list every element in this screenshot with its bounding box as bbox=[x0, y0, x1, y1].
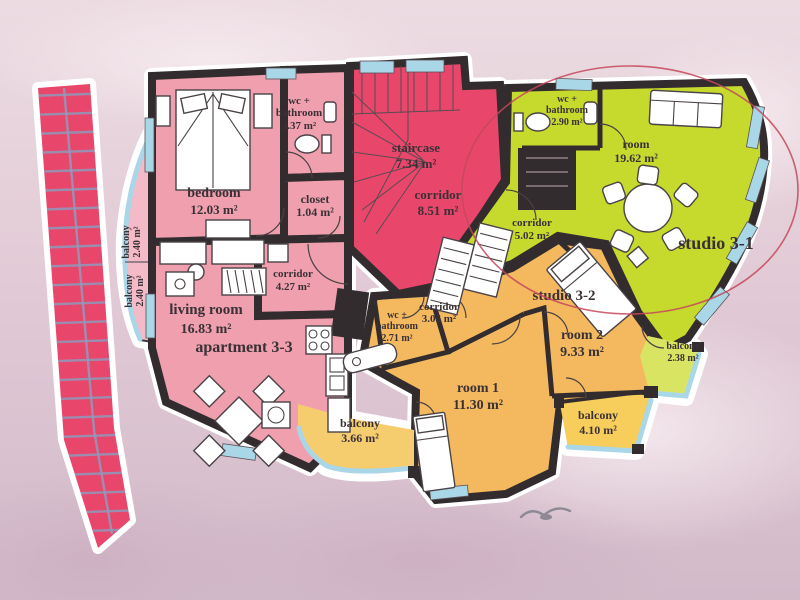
label-room1-area: 11.30 m² bbox=[453, 398, 503, 413]
sink-icon bbox=[324, 102, 336, 122]
label-balcony-238: balcony bbox=[666, 341, 699, 352]
window bbox=[556, 78, 592, 90]
label-wc-a-1: wc + bbox=[288, 95, 310, 107]
label-corridor-main-area: 8.51 m² bbox=[418, 203, 459, 218]
label-room2-area: 9.33 m² bbox=[560, 345, 604, 360]
washing-machine-icon bbox=[262, 402, 290, 428]
nightstand-icon bbox=[254, 94, 272, 128]
label-balcony-left-upper: balcony bbox=[121, 225, 132, 258]
label-balcony-238-area: 2.38 m² bbox=[667, 353, 698, 364]
floor-plan-canvas: bedroom 12.03 m² wc + bathroom 3.37 m² c… bbox=[0, 0, 800, 600]
label-balcony-left-lower-area: 2.40 m² bbox=[135, 275, 146, 306]
toilet-icon bbox=[514, 113, 550, 131]
label-corridor-s1: corridor bbox=[512, 217, 552, 229]
label-room-s1: room bbox=[622, 137, 649, 151]
label-staircase: staircase bbox=[392, 140, 440, 155]
double-bed-icon bbox=[176, 90, 250, 190]
window bbox=[360, 61, 394, 73]
label-corridor-s2-area: 3.06 m² bbox=[422, 313, 457, 325]
label-balcony-left-lower: balcony bbox=[124, 274, 135, 307]
label-corridor-s2: corridor bbox=[419, 301, 459, 313]
window bbox=[266, 68, 296, 79]
label-wc-s1-2: bathroom bbox=[546, 105, 589, 116]
wardrobe-icon bbox=[222, 268, 266, 295]
label-bedroom: bedroom bbox=[187, 186, 241, 201]
label-balcony-366-area: 3.66 m² bbox=[341, 431, 379, 445]
label-wc-s1-1: wc + bbox=[557, 94, 577, 105]
label-wc-s2-area: 2.71 m² bbox=[381, 333, 412, 344]
printer-icon bbox=[166, 272, 194, 296]
label-living: living room bbox=[169, 302, 243, 318]
vent-shaft bbox=[331, 288, 369, 340]
label-room-s1-area: 19.62 m² bbox=[614, 151, 658, 165]
label-closet: closet bbox=[301, 192, 330, 206]
stove-icon bbox=[306, 326, 332, 354]
toilet-icon bbox=[295, 135, 331, 153]
label-living-area: 16.83 m² bbox=[181, 322, 232, 337]
label-wc-a-area: 3.37 m² bbox=[282, 120, 317, 132]
label-wc-s2-1: wc + bbox=[387, 310, 407, 321]
label-wc-s2-2: bathroom bbox=[376, 321, 419, 332]
label-corridor-main: corridor bbox=[415, 187, 462, 202]
label-balcony-410: balcony bbox=[578, 408, 618, 422]
label-room2: room 2 bbox=[561, 328, 603, 343]
label-balcony-left-upper-area: 2.40 m² bbox=[132, 226, 143, 257]
sofa-icon bbox=[649, 90, 723, 128]
label-room1: room 1 bbox=[457, 381, 499, 396]
window bbox=[406, 60, 444, 72]
label-corridor-a: corridor bbox=[273, 268, 313, 280]
label-bedroom-area: 12.03 m² bbox=[190, 202, 237, 217]
window bbox=[146, 294, 155, 338]
label-corridor-a-area: 4.27 m² bbox=[276, 281, 311, 293]
label-staircase-area: 7.34 m² bbox=[396, 156, 437, 171]
label-corridor-s1-area: 5.02 m² bbox=[515, 230, 550, 242]
label-wc-s1-area: 2.90 m² bbox=[551, 117, 582, 128]
label-wc-a-2: bathroom bbox=[276, 107, 322, 119]
label-closet-area: 1.04 m² bbox=[296, 205, 334, 219]
label-studio-3-1: studio 3-1 bbox=[678, 233, 754, 253]
label-balcony-410-area: 4.10 m² bbox=[579, 423, 617, 437]
bench-icon bbox=[206, 220, 250, 238]
label-balcony-366: balcony bbox=[340, 416, 380, 430]
window bbox=[145, 118, 154, 172]
nightstand-icon bbox=[156, 96, 170, 126]
label-apartment: apartment 3-3 bbox=[195, 339, 292, 356]
